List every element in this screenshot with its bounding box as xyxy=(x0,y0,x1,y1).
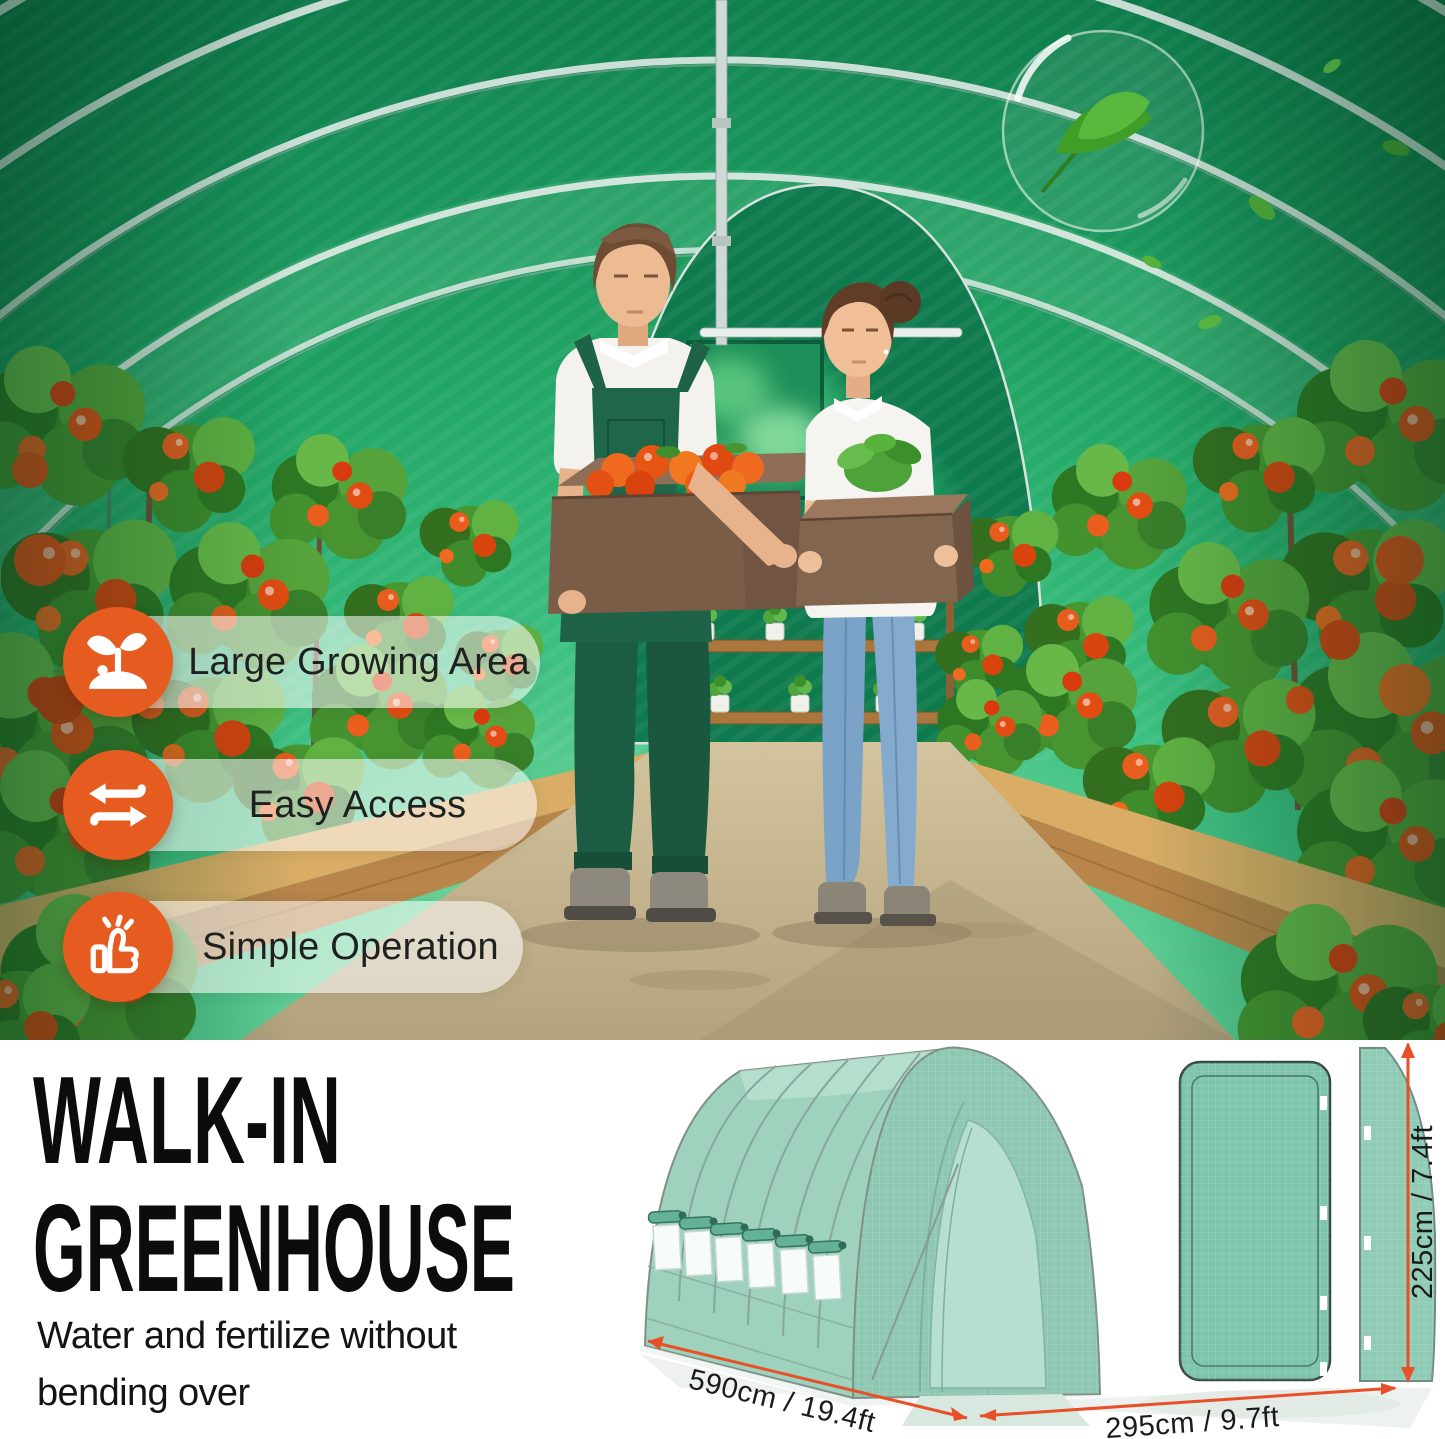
greenhouse-photo: Large Growing Area Easy Access xyxy=(0,0,1445,1040)
greenhouse-diagram: 225cm / 7.4ft 590cm / 19.4ft 295cm / 9.7… xyxy=(620,1036,1445,1439)
vignette-left xyxy=(0,0,300,1040)
title-line2: GREENHOUSE xyxy=(33,1180,515,1313)
height-dimension-label: 225cm / 7.4ft xyxy=(1407,1125,1439,1299)
subtitle-line2: bending over xyxy=(37,1365,457,1422)
harvest-box xyxy=(548,443,836,614)
transfer-arrows-icon xyxy=(63,750,173,860)
center-pole xyxy=(716,0,727,345)
feature-label: Simple Operation xyxy=(202,926,499,969)
product-infographic: Large Growing Area Easy Access xyxy=(0,0,1445,1439)
greenhouse-photo-art xyxy=(0,0,1445,1040)
front-face xyxy=(853,1048,1100,1426)
feature-label: Easy Access xyxy=(249,784,467,827)
subtitle-line1: Water and fertilize without xyxy=(37,1308,457,1365)
feature-label: Large Growing Area xyxy=(188,641,530,684)
headline: WALK-IN GREENHOUSE xyxy=(33,1051,593,1313)
sprout-icon xyxy=(63,607,173,717)
subtitle: Water and fertilize without bending over xyxy=(37,1308,457,1422)
hair-bun xyxy=(879,281,921,323)
open-door xyxy=(1180,1062,1330,1380)
title-line1: WALK-IN xyxy=(33,1052,341,1190)
thumbs-up-icon xyxy=(63,892,173,1002)
info-section: WALK-IN GREENHOUSE Water and fertilize w… xyxy=(0,1040,1445,1439)
vignette-right xyxy=(1145,0,1445,1040)
